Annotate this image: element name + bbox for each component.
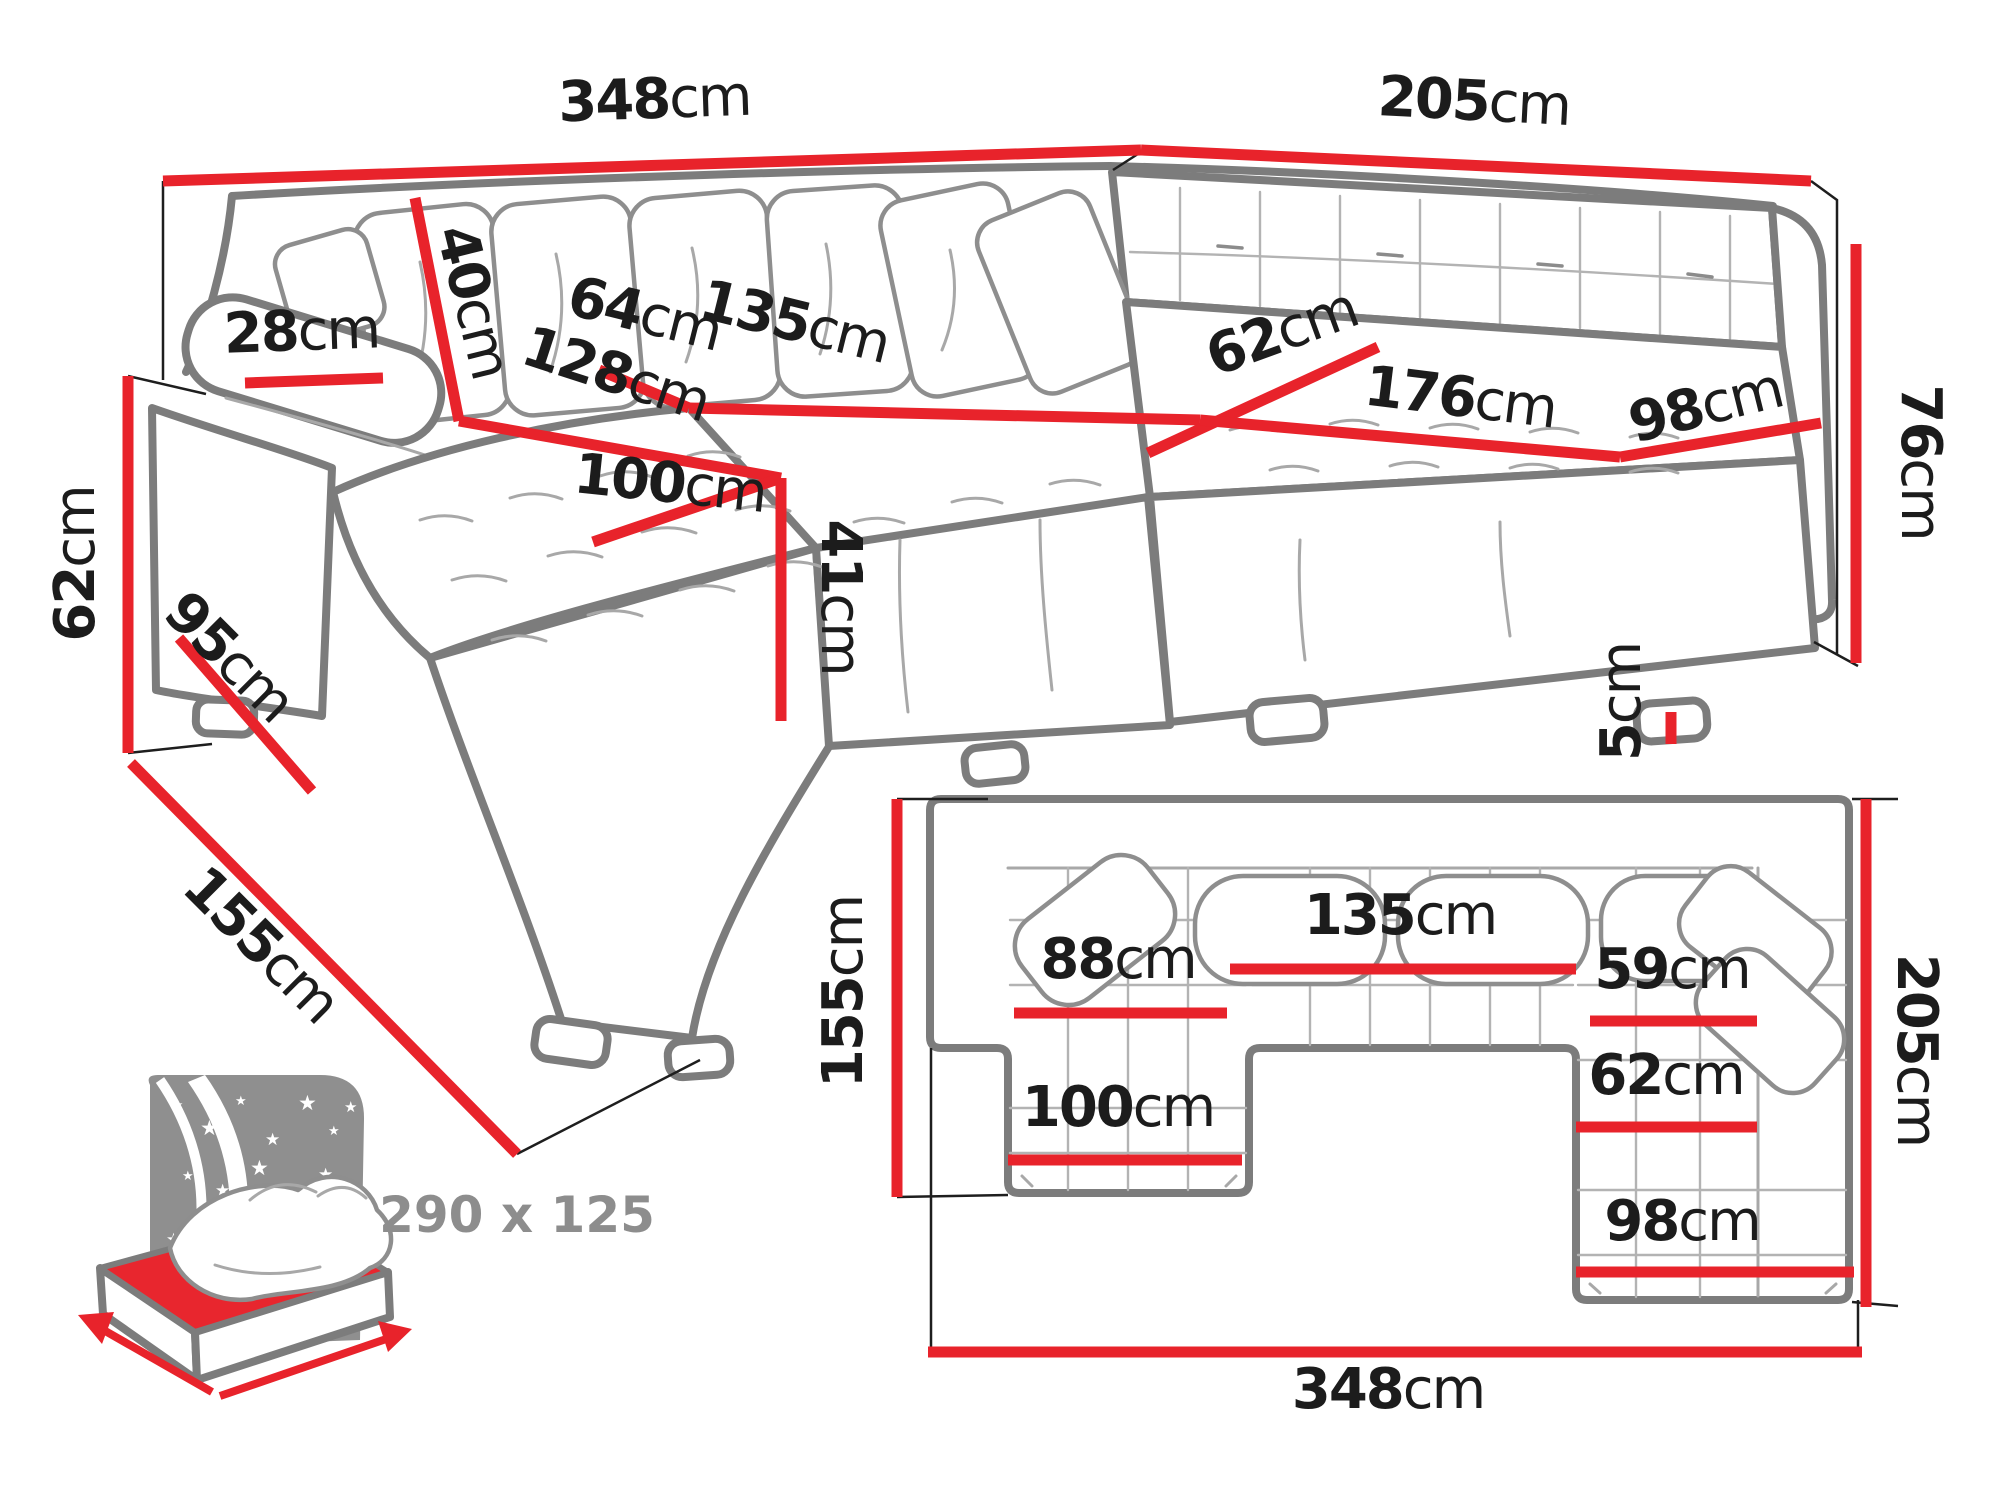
svg-text:★: ★ (298, 1091, 317, 1115)
sofa-dimension-diagram: 348cm 205cm 62cm 28cm 95cm 155cm 40cm 64… (0, 0, 2000, 1500)
svg-text:★: ★ (265, 1130, 280, 1150)
dim-label-plan-right-seat-depth: 62cm (1588, 1043, 1743, 1108)
dim-label-back-width: 348cm (557, 64, 751, 136)
arrow-head-right (378, 1321, 412, 1352)
dim-label-base-height: 5cm (1589, 643, 1654, 761)
arrow-head-left (78, 1312, 114, 1344)
dim-line-middle-width (689, 408, 1200, 420)
dim-label-plan-total-width: 348cm (1292, 1357, 1484, 1422)
svg-text:★: ★ (250, 1156, 269, 1180)
diagram-canvas: 348cm 205cm 62cm 28cm 95cm 155cm 40cm 64… (0, 0, 2000, 1500)
dim-label-seat-height: 41cm (808, 519, 873, 674)
dim-label-plan-right-chaise: 98cm (1604, 1189, 1759, 1254)
sleeping-area-label: 290 x 125 (379, 1186, 655, 1244)
dim-label-armrest-height: 62cm (43, 486, 108, 641)
right-leg-1 (1248, 697, 1325, 743)
dim-label-plan-chaise-seat: 88cm (1040, 927, 1195, 992)
svg-text:★: ★ (344, 1098, 357, 1116)
svg-text:★: ★ (235, 1094, 247, 1109)
dim-label-plan-right-depth: 205cm (1884, 954, 1949, 1146)
bed-icon: ★ ★ ★ ★ ★ ★ ★ ★ ★ ★ ★ ★ ★ ★ ★ ★ ★ ★ ★ ★ … (78, 1075, 655, 1396)
dim-line-armrest-top (245, 378, 383, 383)
dim-label-armrest-top: 28cm (223, 296, 380, 366)
middle-leg (963, 743, 1026, 785)
chaise-leg-1 (533, 1017, 610, 1067)
dim-label-plan-chaise-width: 100cm (1022, 1075, 1214, 1140)
right-seat-front (1150, 460, 1815, 722)
dim-label-total-height: 76cm (1888, 384, 1953, 539)
dim-label-plan-left-depth: 155cm (811, 896, 876, 1088)
dim-label-plan-right-seat: 59cm (1594, 937, 1749, 1002)
dim-label-plan-middle: 135cm (1304, 883, 1496, 948)
svg-text:★: ★ (328, 1124, 340, 1139)
dim-label-side-depth: 155cm (170, 854, 352, 1036)
dim-label-right-width: 205cm (1376, 64, 1571, 139)
svg-text:★: ★ (182, 1169, 194, 1184)
plan-view: 155cm 205cm 348cm 88cm 135cm 59cm 62cm 9… (811, 799, 1949, 1422)
